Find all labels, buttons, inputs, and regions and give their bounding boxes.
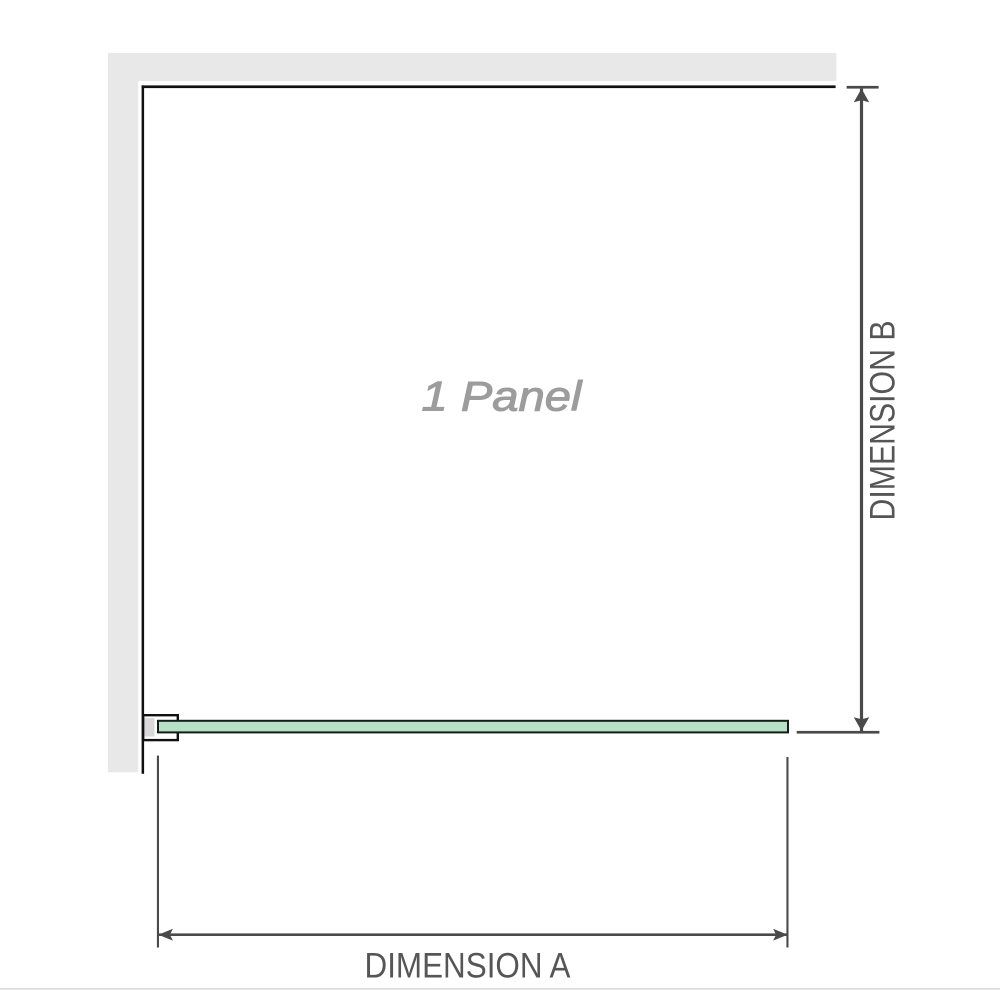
svg-text:1 Panel: 1 Panel [422,373,584,420]
svg-text:DIMENSION A: DIMENSION A [365,947,572,986]
svg-text:DIMENSION B: DIMENSION B [864,321,903,521]
